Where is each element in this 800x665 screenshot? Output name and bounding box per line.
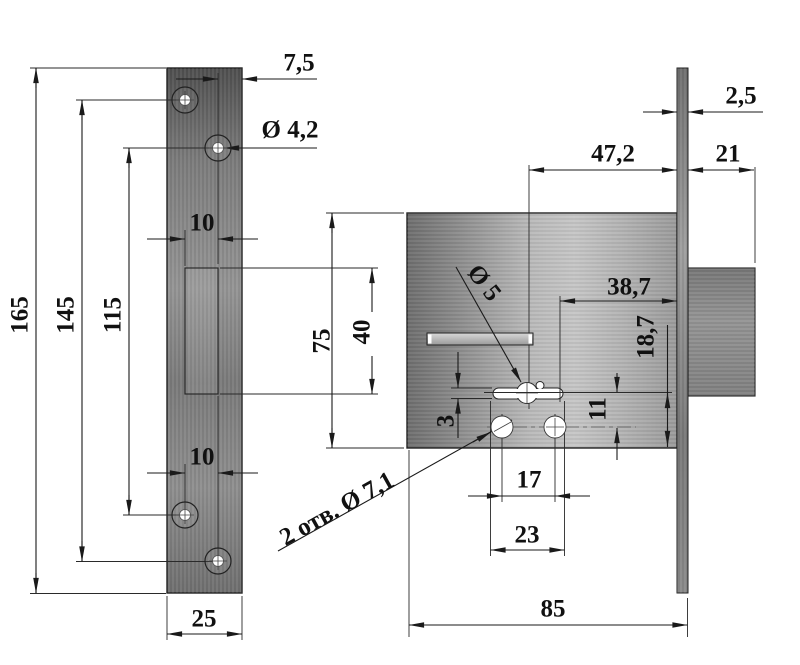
dim-label-bolt-throw: 21 bbox=[716, 142, 741, 167]
dim-label-plate-height: 165 bbox=[8, 296, 33, 334]
dim-label-body-depth: 85 bbox=[541, 597, 566, 622]
dim-label-edge-to-hole: 7,5 bbox=[283, 51, 314, 76]
dim-label-backset: 47,2 bbox=[591, 142, 635, 167]
dim-label-keyhole-length: 23 bbox=[515, 523, 540, 548]
dim-label-hole-offset-bottom: 10 bbox=[190, 445, 215, 470]
technical-drawing: 165 145 115 7,5 Ø 4,2 10 40 10 25 2,5 47… bbox=[0, 0, 800, 665]
dim-label-plate-width: 25 bbox=[192, 607, 217, 632]
dim-label-faceplate-thickness: 2,5 bbox=[725, 84, 756, 109]
dim-label-hole-diameter: Ø 4,2 bbox=[262, 118, 319, 143]
strike-plate-slot bbox=[185, 268, 218, 394]
dim-label-keyhole-to-holes: 11 bbox=[586, 397, 611, 421]
screw-hole-lower-left bbox=[172, 502, 198, 528]
dim-label-keyhole-to-bottom: 18,7 bbox=[634, 315, 659, 359]
follower-slot bbox=[427, 333, 533, 345]
dim-label-holes-spacing: 17 bbox=[517, 468, 542, 493]
dim-label-keyhole-to-face: 38,7 bbox=[607, 275, 651, 300]
screw-hole-top-left bbox=[172, 87, 198, 113]
dim-label-keyhole-slot-width: 3 bbox=[434, 415, 459, 428]
screw-hole-upper-right bbox=[205, 135, 231, 161]
dim-label-hole-offset-top: 10 bbox=[190, 211, 215, 236]
dim-label-hole-span-outer: 145 bbox=[54, 296, 79, 334]
lock-body-view bbox=[407, 68, 755, 593]
dim-label-slot-height: 40 bbox=[350, 320, 375, 345]
dim-label-body-height: 75 bbox=[310, 329, 335, 354]
dim-label-hole-span-inner: 115 bbox=[101, 297, 126, 333]
screw-hole-bottom-right bbox=[205, 548, 231, 574]
